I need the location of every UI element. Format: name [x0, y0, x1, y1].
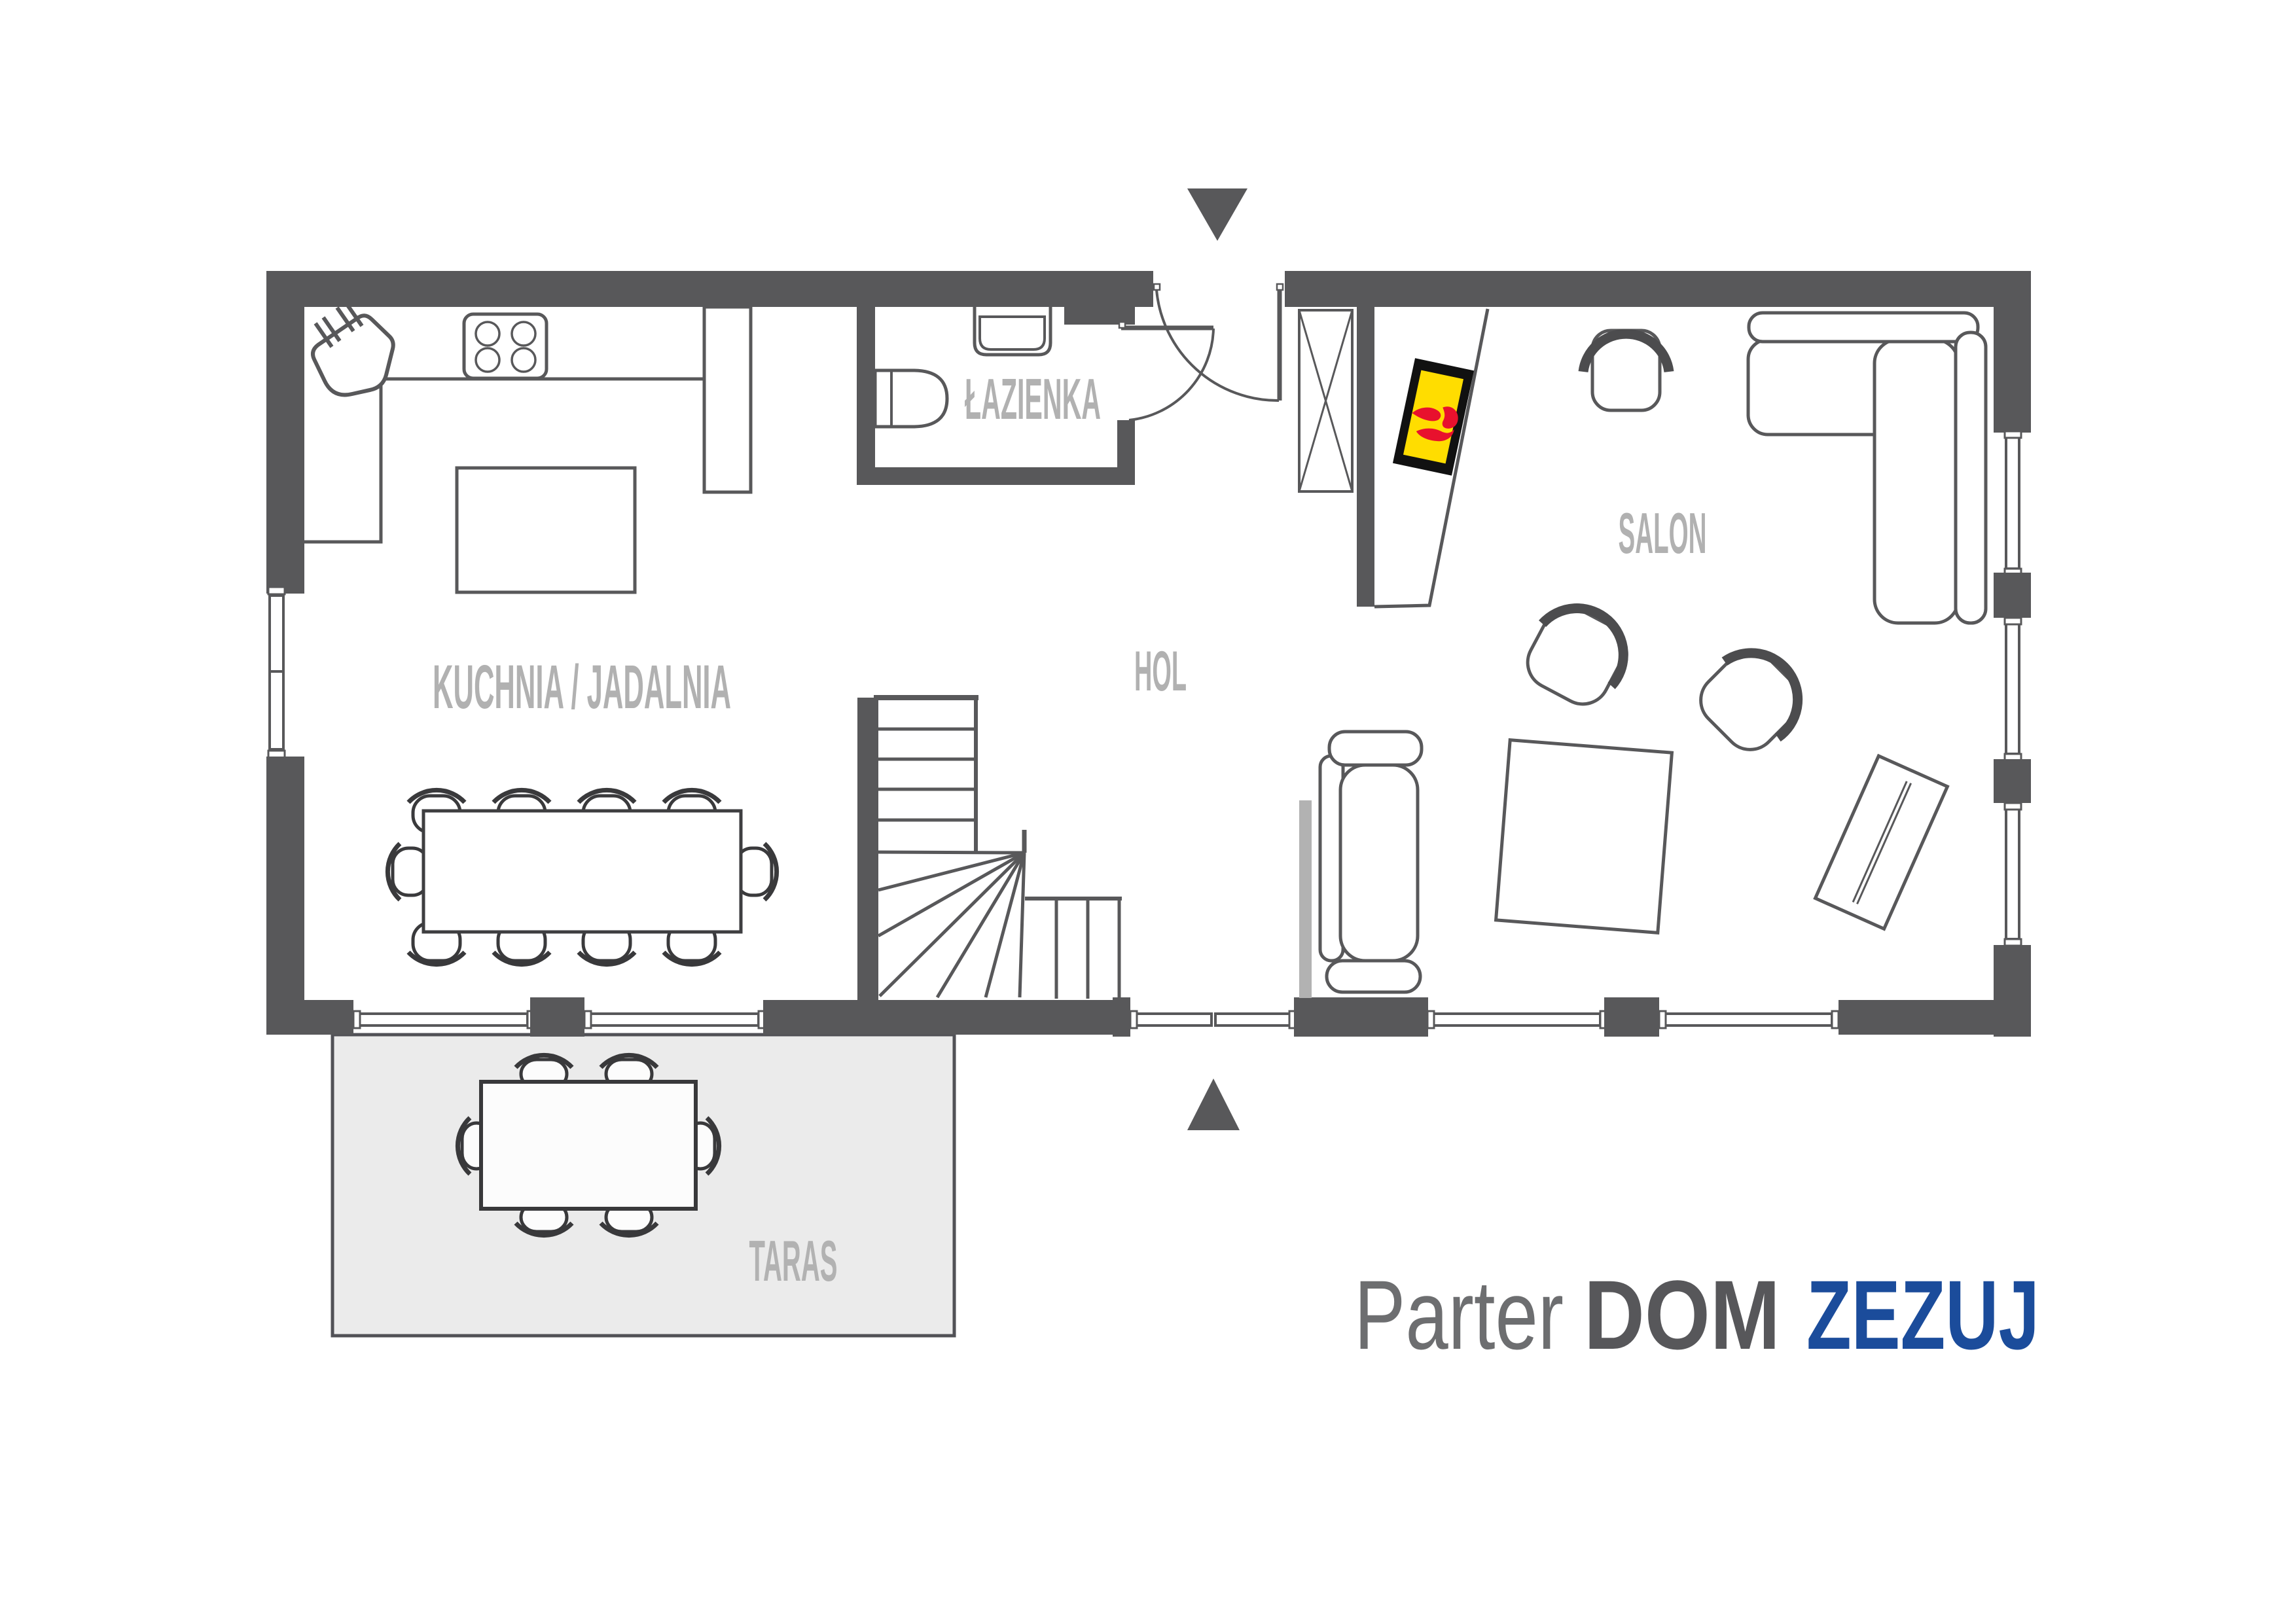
svg-text:SALON: SALON: [1619, 501, 1707, 565]
svg-text:HOL: HOL: [1134, 640, 1187, 703]
svg-text:Parter: Parter: [1354, 1260, 1564, 1370]
svg-text:KUCHNIA / JADALNIA: KUCHNIA / JADALNIA: [433, 652, 731, 722]
svg-text:ZEZUJ: ZEZUJ: [1806, 1260, 2039, 1370]
svg-text:TARAS: TARAS: [749, 1228, 838, 1293]
svg-text:ŁAZIENKA: ŁAZIENKA: [965, 366, 1101, 431]
svg-text:DOM: DOM: [1584, 1260, 1780, 1370]
